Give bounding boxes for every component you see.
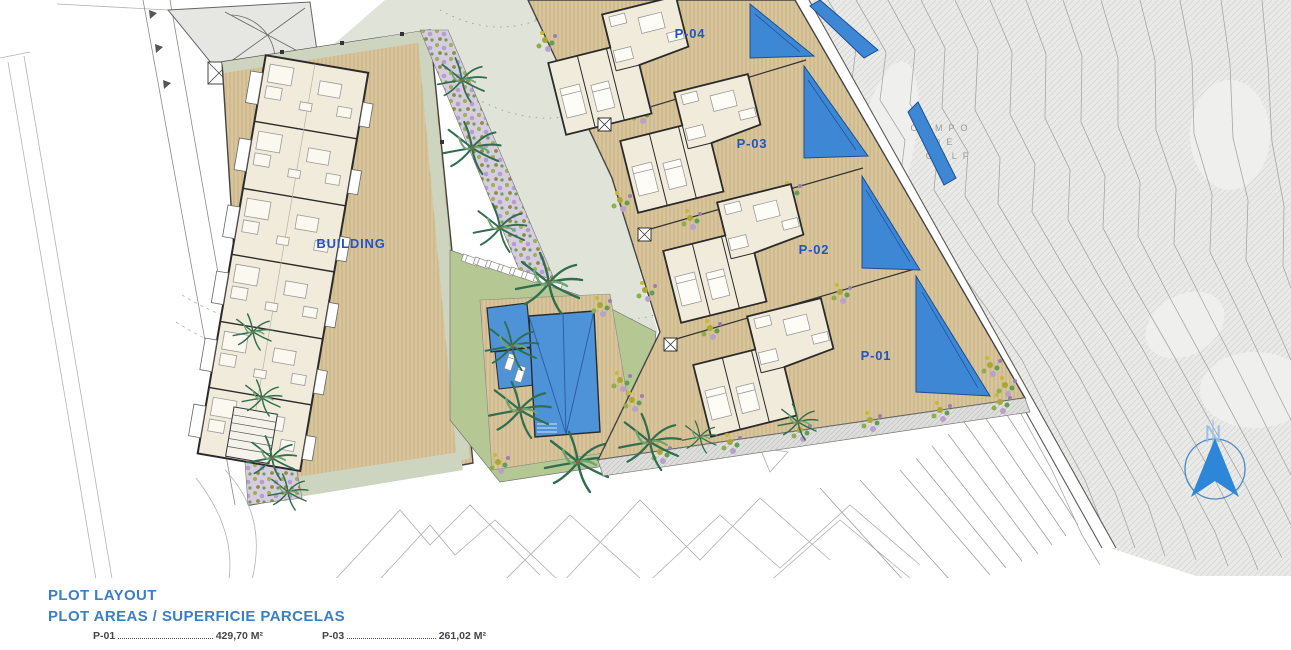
plot-area-label: P-03: [322, 630, 344, 642]
plot-area-label: P-01: [93, 630, 115, 642]
plot-area-value: 261,02 M²: [439, 630, 486, 642]
plot-label-p03: P-03: [737, 136, 768, 151]
dotted-leader: [118, 638, 213, 639]
plot-area-row-p01: P-01 429,70 M²: [93, 630, 263, 642]
plot-area-row-p03: P-03 261,02 M²: [322, 630, 486, 642]
plot-label-p01: P-01: [861, 348, 892, 363]
site-plan-canvas: CAMPO DE GOLF BUILDING: [0, 0, 1291, 650]
plot-area-value: 429,70 M²: [216, 630, 263, 642]
plot-label-p02: P-02: [799, 242, 830, 257]
dotted-leader: [347, 638, 436, 639]
legend-title-line1: PLOT LAYOUT: [48, 585, 345, 606]
building-label: BUILDING: [316, 236, 385, 251]
legend-title-block: PLOT LAYOUT PLOT AREAS / SUPERFICIE PARC…: [48, 585, 345, 627]
plot-label-p04: P-04: [675, 26, 706, 41]
main-pool: [529, 311, 600, 437]
building-plot: BUILDING: [186, 30, 473, 505]
site-plan-drawing: CAMPO DE GOLF BUILDING: [0, 0, 1291, 650]
legend-title-line2: PLOT AREAS / SUPERFICIE PARCELAS: [48, 606, 345, 627]
